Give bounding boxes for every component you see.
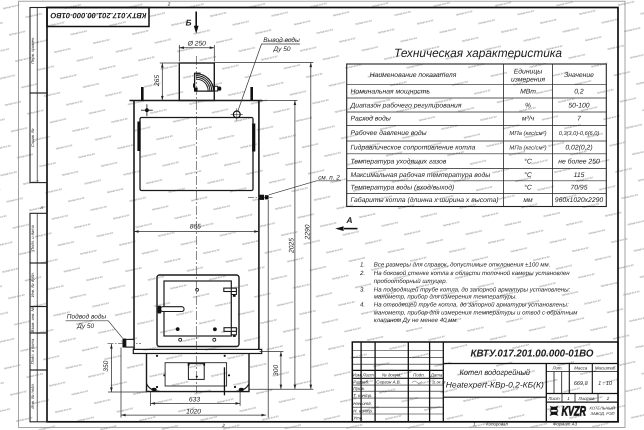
svg-text:Лист: Лист — [361, 372, 374, 377]
svg-text:МПа (кгс/см²): МПа (кгс/см²) — [509, 130, 546, 137]
svg-text:На отводящей трубе котла, до з: На отводящей трубе котла, до запорной ар… — [374, 302, 569, 309]
svg-text:°С: °С — [524, 158, 532, 165]
svg-text:Утв.: Утв. — [353, 416, 363, 421]
svg-text:не более 250: не более 250 — [558, 158, 600, 165]
svg-text:Все размеры для справок, допус: Все размеры для справок, допустимые откл… — [374, 261, 551, 268]
svg-text:0,3(3,0)-0,6(6,0): 0,3(3,0)-0,6(6,0) — [559, 130, 600, 137]
svg-text:Б: Б — [186, 18, 192, 28]
svg-text:1.: 1. — [360, 261, 365, 268]
svg-text:Ду 50: Ду 50 — [76, 323, 94, 330]
svg-text:1 : 10: 1 : 10 — [598, 381, 613, 387]
svg-text:633: 633 — [189, 397, 200, 404]
svg-text:%: % — [525, 102, 531, 109]
svg-text:2025: 2025 — [289, 238, 296, 254]
svg-text:2290: 2290 — [304, 224, 311, 240]
svg-text:Температура воды (вход/выход): Температура воды (вход/выход) — [351, 184, 455, 191]
svg-text:Подп. и дата: Подп. и дата — [30, 224, 35, 250]
svg-text:КВТУ.017.201.00.000-01ВО: КВТУ.017.201.00.000-01ВО — [471, 348, 594, 359]
svg-text:Инв. № подл.: Инв. № подл. — [30, 383, 35, 408]
svg-text:Н. контр.: Н. контр. — [353, 408, 373, 413]
svg-text:см. п. 2: см. п. 2 — [318, 174, 340, 181]
svg-text:Значение: Значение — [564, 72, 594, 79]
svg-text:2: 2 — [221, 423, 225, 428]
svg-text:°С: °С — [524, 184, 532, 191]
svg-text:265: 265 — [154, 75, 161, 87]
svg-text:Пров.: Пров. — [353, 386, 365, 391]
svg-text:Инв. № дубл.: Инв. № дубл. — [30, 272, 35, 297]
svg-text:2: 2 — [606, 396, 610, 401]
svg-text:2: 2 — [167, 1, 171, 6]
svg-text:70/95: 70/95 — [570, 184, 587, 191]
svg-text:Рабочее давление воды: Рабочее давление воды — [351, 130, 427, 137]
svg-text:м³/ч: м³/ч — [522, 116, 535, 123]
svg-text:Сергин А.В.: Сергин А.В. — [376, 380, 401, 385]
svg-text:манометр, прибор для измерения: манометр, прибор для измерения температу… — [374, 309, 579, 316]
svg-text:А: А — [39, 205, 43, 210]
svg-text:На боковой стенке котла в обла: На боковой стенке котла в области топочн… — [374, 270, 571, 277]
svg-text:4.: 4. — [360, 302, 365, 309]
svg-text:Листов: Листов — [578, 396, 596, 401]
svg-text:пробоотборный штуцер.: пробоотборный штуцер. — [374, 278, 448, 285]
svg-text:мм: мм — [523, 197, 533, 204]
svg-text:Подп. и дата: Подп. и дата — [30, 338, 35, 364]
svg-text:А: А — [346, 215, 353, 225]
svg-text:Максимальная рабочая температу: Максимальная рабочая температура воды — [351, 172, 491, 179]
svg-text:Взам. инв. №: Взам. инв. № — [30, 306, 35, 332]
svg-text:измерения: измерения — [511, 77, 545, 84]
svg-text:7: 7 — [577, 116, 581, 123]
svg-text:Единицы: Единицы — [514, 69, 542, 76]
svg-text:0,02(0,2): 0,02(0,2) — [565, 145, 592, 152]
svg-text:Габариты котла (длинна х ширин: Габариты котла (длинна х ширина х высота… — [351, 197, 499, 204]
svg-text:Расход воды: Расход воды — [351, 116, 391, 123]
svg-text:Котел водогрейный: Котел водогрейный — [460, 368, 531, 377]
svg-text:ЗАВОД. РЭП: ЗАВОД. РЭП — [591, 411, 615, 416]
svg-text:Масса: Масса — [574, 366, 588, 371]
svg-text:Разраб.: Разраб. — [353, 380, 369, 385]
svg-text:Нач.отд.: Нач.отд. — [353, 401, 372, 406]
svg-text:50-100: 50-100 — [568, 102, 589, 109]
svg-text:клапаном Ду не менее 40 мм.: клапаном Ду не менее 40 мм. — [374, 317, 458, 324]
svg-text:115: 115 — [574, 172, 585, 179]
svg-text:манометр, прибор для измерения: манометр, прибор для измерения температу… — [374, 294, 517, 301]
svg-text:KVZR: KVZR — [562, 404, 587, 419]
svg-text:865: 865 — [190, 224, 201, 231]
svg-text:Ø 250: Ø 250 — [187, 40, 206, 47]
svg-text:Дата: Дата — [430, 372, 443, 377]
svg-text:Гидравлическое сопротивление к: Гидравлическое сопротивление котла — [351, 145, 476, 152]
svg-text:669,8: 669,8 — [574, 381, 589, 387]
svg-text:Формат А3: Формат А3 — [553, 422, 578, 427]
svg-text:КВТУ.017.201.00.000-01ВО: КВТУ.017.201.00.000-01ВО — [50, 11, 146, 20]
svg-text:Наименование показателя: Наименование показателя — [370, 72, 457, 79]
svg-text:Масштаб: Масштаб — [595, 366, 616, 371]
svg-text:Лист: Лист — [547, 396, 560, 401]
svg-text:Heatexpert-КВр-0,2-КБ(К): Heatexpert-КВр-0,2-КБ(К) — [446, 381, 544, 390]
svg-text:1020: 1020 — [186, 408, 201, 415]
svg-text:0,2: 0,2 — [574, 89, 584, 96]
svg-text:Изм: Изм — [353, 372, 361, 377]
svg-text:°С: °С — [524, 172, 532, 179]
svg-text:Копировал: Копировал — [486, 422, 508, 427]
svg-text:300: 300 — [273, 365, 280, 376]
svg-text:МВт: МВт — [520, 89, 536, 96]
svg-text:На подводящей трубе котла, до: На подводящей трубе котла, до запорной а… — [374, 286, 571, 293]
svg-text:Температура уходящих газов: Температура уходящих газов — [351, 158, 447, 165]
svg-text:11.04.19: 11.04.19 — [432, 380, 445, 384]
svg-text:Подп.: Подп. — [413, 372, 425, 377]
svg-text:Диапазон рабочего регулировани: Диапазон рабочего регулирования — [350, 102, 462, 109]
svg-text:Номинальная мощность: Номинальная мощность — [351, 89, 431, 96]
svg-text:2.: 2. — [359, 270, 365, 277]
svg-text:350: 350 — [103, 360, 110, 371]
svg-text:Перв. примен.: Перв. примен. — [30, 37, 35, 64]
svg-text:Подвод воды: Подвод воды — [67, 314, 107, 321]
svg-text:3.: 3. — [360, 286, 365, 293]
svg-text:Лит.: Лит. — [551, 366, 562, 371]
svg-text:Справ. №: Справ. № — [30, 128, 35, 147]
svg-text:Ду 50: Ду 50 — [273, 46, 291, 53]
svg-text:КОТЕЛЬНЫЙ: КОТЕЛЬНЫЙ — [590, 406, 615, 411]
svg-text:960х1020х2290: 960х1020х2290 — [555, 197, 604, 204]
svg-text:МПа (кгс/см²): МПа (кгс/см²) — [509, 145, 546, 152]
svg-text:№ докум.: № докум. — [382, 372, 401, 377]
svg-text:Техническая характеристика: Техническая характеристика — [394, 46, 562, 60]
svg-text:Т. контр.: Т. контр. — [353, 393, 372, 398]
svg-text:Вывод воды: Вывод воды — [263, 37, 300, 44]
